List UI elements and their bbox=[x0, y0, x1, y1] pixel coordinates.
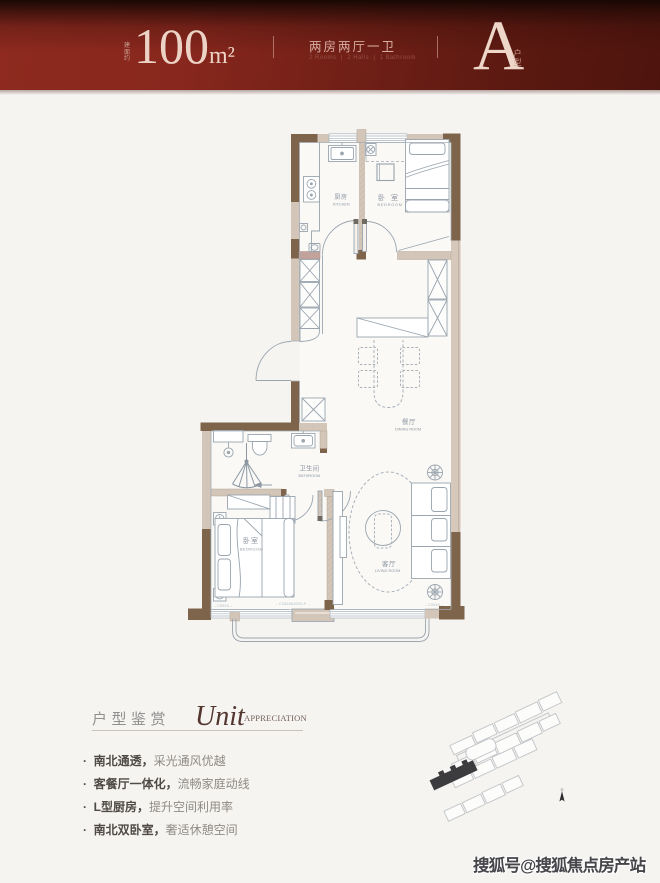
svg-text:KITCHEN: KITCHEN bbox=[333, 203, 350, 207]
svg-text:←C2845&2020-P→: ←C2845&2020-P→ bbox=[275, 601, 310, 606]
svg-text:卧室: 卧室 bbox=[378, 193, 404, 202]
svg-text:DINING ROOM: DINING ROOM bbox=[395, 428, 421, 432]
svg-text:BATHROOM: BATHROOM bbox=[299, 474, 321, 478]
svg-text:BEDROOM: BEDROOM bbox=[240, 548, 263, 552]
svg-text:BEDROOM: BEDROOM bbox=[378, 203, 403, 207]
svg-text:←C0916→: ←C0916→ bbox=[424, 602, 444, 607]
svg-text:餐厅: 餐厅 bbox=[402, 417, 416, 426]
svg-text:卫生间: 卫生间 bbox=[300, 464, 320, 473]
svg-text:←C0916→: ←C0916→ bbox=[213, 603, 233, 608]
svg-text:卧室: 卧室 bbox=[243, 536, 259, 545]
svg-text:LIVING ROOM: LIVING ROOM bbox=[375, 569, 400, 573]
svg-text:客厅: 客厅 bbox=[382, 559, 396, 568]
svg-text:厨房: 厨房 bbox=[335, 193, 348, 201]
